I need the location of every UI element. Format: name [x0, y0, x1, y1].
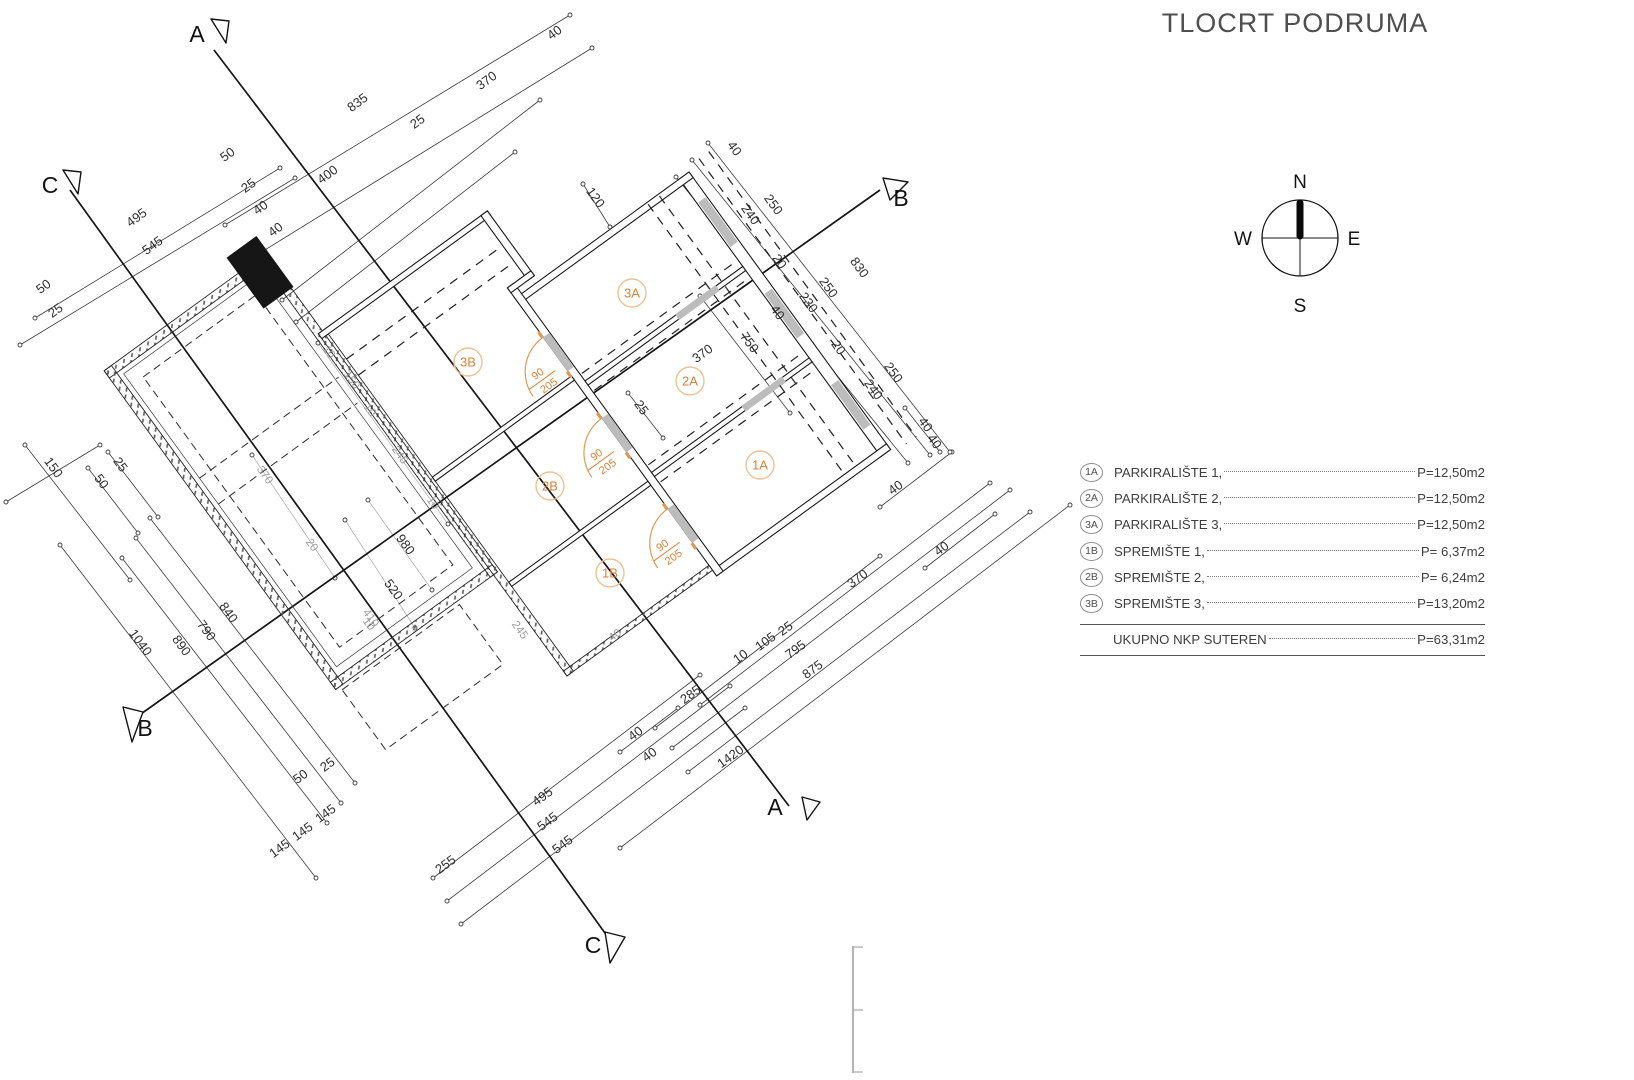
- section-lines: [63, 19, 908, 963]
- legend-total-row: UKUPNO NKP SUTEREN P=63,31m2: [1080, 625, 1485, 655]
- dimension-label: 50: [217, 144, 238, 165]
- dimension-label: 150: [41, 454, 66, 480]
- section-triangle: [605, 932, 625, 963]
- dimension-lines: [6, 15, 1070, 924]
- dimension-label: 795: [782, 637, 808, 662]
- section-letter-a: A: [189, 21, 205, 47]
- door-swing: 90205: [504, 332, 571, 402]
- room-badge: 3A: [1080, 515, 1103, 534]
- dimension-label: 40: [915, 414, 936, 435]
- dotted-leader: [1207, 549, 1419, 551]
- dimension-label: 145: [266, 836, 292, 861]
- dimension-label: 830: [847, 254, 872, 280]
- compass-north: N: [1293, 172, 1307, 193]
- dimension-label: 40: [639, 744, 660, 765]
- legend-row: 1APARKIRALIŠTE 1,P=12,50m2: [1080, 459, 1485, 485]
- legend-divider: [1080, 655, 1485, 656]
- compass-south: S: [1294, 296, 1307, 317]
- room-badge: 1B: [1080, 542, 1103, 561]
- dimension-label: 145: [312, 801, 338, 826]
- dimension-label: 40: [924, 431, 945, 452]
- dimension-label: 750: [737, 329, 762, 355]
- dotted-leader: [1224, 522, 1415, 524]
- dimension-label: 50: [290, 766, 311, 787]
- dimension-label: 370: [844, 566, 870, 591]
- dimension-label: 495: [123, 205, 149, 230]
- dimension-label: 145: [289, 819, 315, 844]
- dimension-label: 980: [393, 531, 418, 557]
- room-id: 3A: [624, 286, 640, 301]
- legend-room-area: P=12,50m2: [1417, 491, 1485, 506]
- dimension-label: 285: [677, 682, 703, 707]
- room-badge: 2A: [1080, 489, 1103, 508]
- section-letter-c: C: [42, 172, 59, 198]
- legend-room-name: PARKIRALIŠTE 1,: [1114, 465, 1222, 480]
- dimension-label: 25: [775, 618, 796, 639]
- chimney-block: [227, 237, 293, 308]
- legend-room-area: P= 6,37m2: [1421, 544, 1485, 559]
- room-id: 3B: [460, 355, 476, 370]
- legend-room-area: P=13,20m2: [1417, 596, 1485, 611]
- dotted-leader: [1269, 637, 1416, 639]
- dimension-label: 545: [139, 233, 165, 258]
- compass: NWES: [1234, 172, 1360, 317]
- room-badge: 1A: [1080, 463, 1103, 482]
- dimension-label: 25: [631, 397, 652, 418]
- dimension-label: 250: [816, 274, 841, 300]
- room-id: 2B: [542, 479, 558, 494]
- legend-total-label: UKUPNO NKP SUTEREN: [1113, 632, 1267, 647]
- room-label-3a: 3A: [618, 279, 646, 307]
- dimension-label: 545: [549, 832, 575, 857]
- dimension-label: 10: [730, 646, 751, 667]
- dimension-label: 255: [432, 852, 458, 877]
- dotted-leader: [1224, 470, 1415, 472]
- section-letter-b: B: [893, 185, 908, 211]
- door-swing: 90205: [563, 413, 630, 483]
- door-width: 90: [588, 447, 605, 464]
- dimension-label: 240: [861, 376, 886, 402]
- room-label-2a: 2A: [676, 367, 704, 395]
- section-letter-a: A: [767, 794, 783, 820]
- legend-room-name: SPREMIŠTE 3,: [1114, 596, 1205, 611]
- room-id: 2A: [682, 374, 698, 389]
- legend-total-value: P=63,31m2: [1417, 632, 1485, 647]
- room-label-1a: 1A: [746, 451, 774, 479]
- dimension-label: 240: [738, 201, 763, 227]
- dimension-label: 25: [407, 111, 428, 132]
- legend-room-area: P= 6,24m2: [1421, 570, 1485, 585]
- dimension-label: 250: [761, 191, 786, 217]
- room-label-3b: 3B: [454, 348, 482, 376]
- room-badge: 3B: [1080, 594, 1103, 613]
- dimension-label: 25: [110, 454, 131, 475]
- dotted-leader: [1224, 496, 1415, 498]
- legend-room-name: SPREMIŠTE 2,: [1114, 570, 1205, 585]
- dimension-label: 40: [544, 22, 565, 43]
- dimension-label: 545: [534, 809, 560, 834]
- dimension-label: 840: [216, 599, 241, 625]
- dimension-label: 835: [344, 90, 370, 115]
- dimension-label: 890: [169, 632, 194, 658]
- room-label-2b: 2B: [536, 472, 564, 500]
- doors: 902059020590205: [504, 332, 696, 574]
- legend-row: 2APARKIRALIŠTE 2,P=12,50m2: [1080, 485, 1485, 511]
- dimension-label: 50: [91, 471, 112, 492]
- dimension-label: 875: [799, 657, 825, 682]
- compass-west: W: [1234, 229, 1252, 250]
- dimension-label: 1420: [714, 742, 746, 771]
- legend-room-name: SPREMIŠTE 1,: [1114, 544, 1205, 559]
- dimension-label: 120: [583, 184, 608, 210]
- door-width: 90: [530, 366, 547, 383]
- legend-room-area: P=12,50m2: [1417, 517, 1485, 532]
- room-label-1b: 1B: [596, 559, 624, 587]
- dimension-label: 370: [254, 464, 275, 487]
- area-legend: 1APARKIRALIŠTE 1,P=12,50m22APARKIRALIŠTE…: [1080, 459, 1485, 656]
- legend-row: 1BSPREMIŠTE 1,P= 6,37m2: [1080, 538, 1485, 564]
- legend-room-name: PARKIRALIŠTE 3,: [1114, 517, 1222, 532]
- existing-building-walls: [104, 146, 719, 791]
- dimension-label: 790: [194, 617, 219, 643]
- compass-east: E: [1348, 229, 1361, 250]
- dimension-label: 105: [752, 629, 778, 654]
- dimension-label: 40: [250, 197, 271, 218]
- room-id: 1B: [602, 566, 618, 581]
- legend-room-name: PARKIRALIŠTE 2,: [1114, 491, 1222, 506]
- dimension-label: 25: [45, 300, 66, 321]
- door-width: 90: [654, 537, 671, 554]
- legend-row: 3BSPREMIŠTE 3,P=13,20m2: [1080, 590, 1485, 616]
- dimension-label: 40: [265, 219, 286, 240]
- dimension-label: 230: [796, 289, 821, 315]
- dimension-label: 20: [769, 251, 790, 272]
- dimension-label: 250: [881, 359, 906, 385]
- dashed-construction-lines: [347, 115, 917, 681]
- legend-row: 3APARKIRALIŠTE 3,P=12,50m2: [1080, 512, 1485, 538]
- adjacent-drawing-fragment: [853, 946, 863, 1073]
- dimension-label: 40: [724, 138, 745, 159]
- page-title: TLOCRT PODRUMA: [1095, 8, 1495, 39]
- dimension-label: 20: [303, 537, 320, 554]
- dimension-label: 40: [931, 538, 952, 559]
- dimension-label: 245: [509, 619, 530, 642]
- demolition-dashed-outline: [143, 295, 453, 648]
- dimension-label: 40: [885, 477, 906, 498]
- dimension-label: 1040: [126, 626, 155, 658]
- drawing-sheet: 902059020590205 835370402540050254040495…: [0, 0, 1634, 1080]
- section-letter-c: C: [585, 932, 602, 958]
- door-swing: 90205: [629, 504, 696, 574]
- section-triangle: [63, 170, 81, 194]
- section-letters: ACBBAC: [42, 21, 909, 958]
- dimension-label: 50: [33, 276, 54, 297]
- dimension-label: 370: [689, 341, 715, 366]
- dimension-label: 25: [238, 175, 259, 196]
- section-triangle: [802, 797, 820, 820]
- section-letter-b: B: [137, 715, 152, 741]
- legend-row: 2BSPREMIŠTE 2,P= 6,24m2: [1080, 564, 1485, 590]
- room-id: 1A: [752, 458, 768, 473]
- dimension-label: 40: [625, 723, 646, 744]
- dimension-label: 520: [381, 576, 406, 602]
- dotted-leader: [1207, 575, 1419, 577]
- room-badge: 2B: [1080, 568, 1103, 587]
- legend-room-area: P=12,50m2: [1417, 465, 1485, 480]
- dotted-leader: [1207, 601, 1415, 603]
- section-triangle: [211, 19, 229, 43]
- dimension-label: 400: [314, 162, 340, 187]
